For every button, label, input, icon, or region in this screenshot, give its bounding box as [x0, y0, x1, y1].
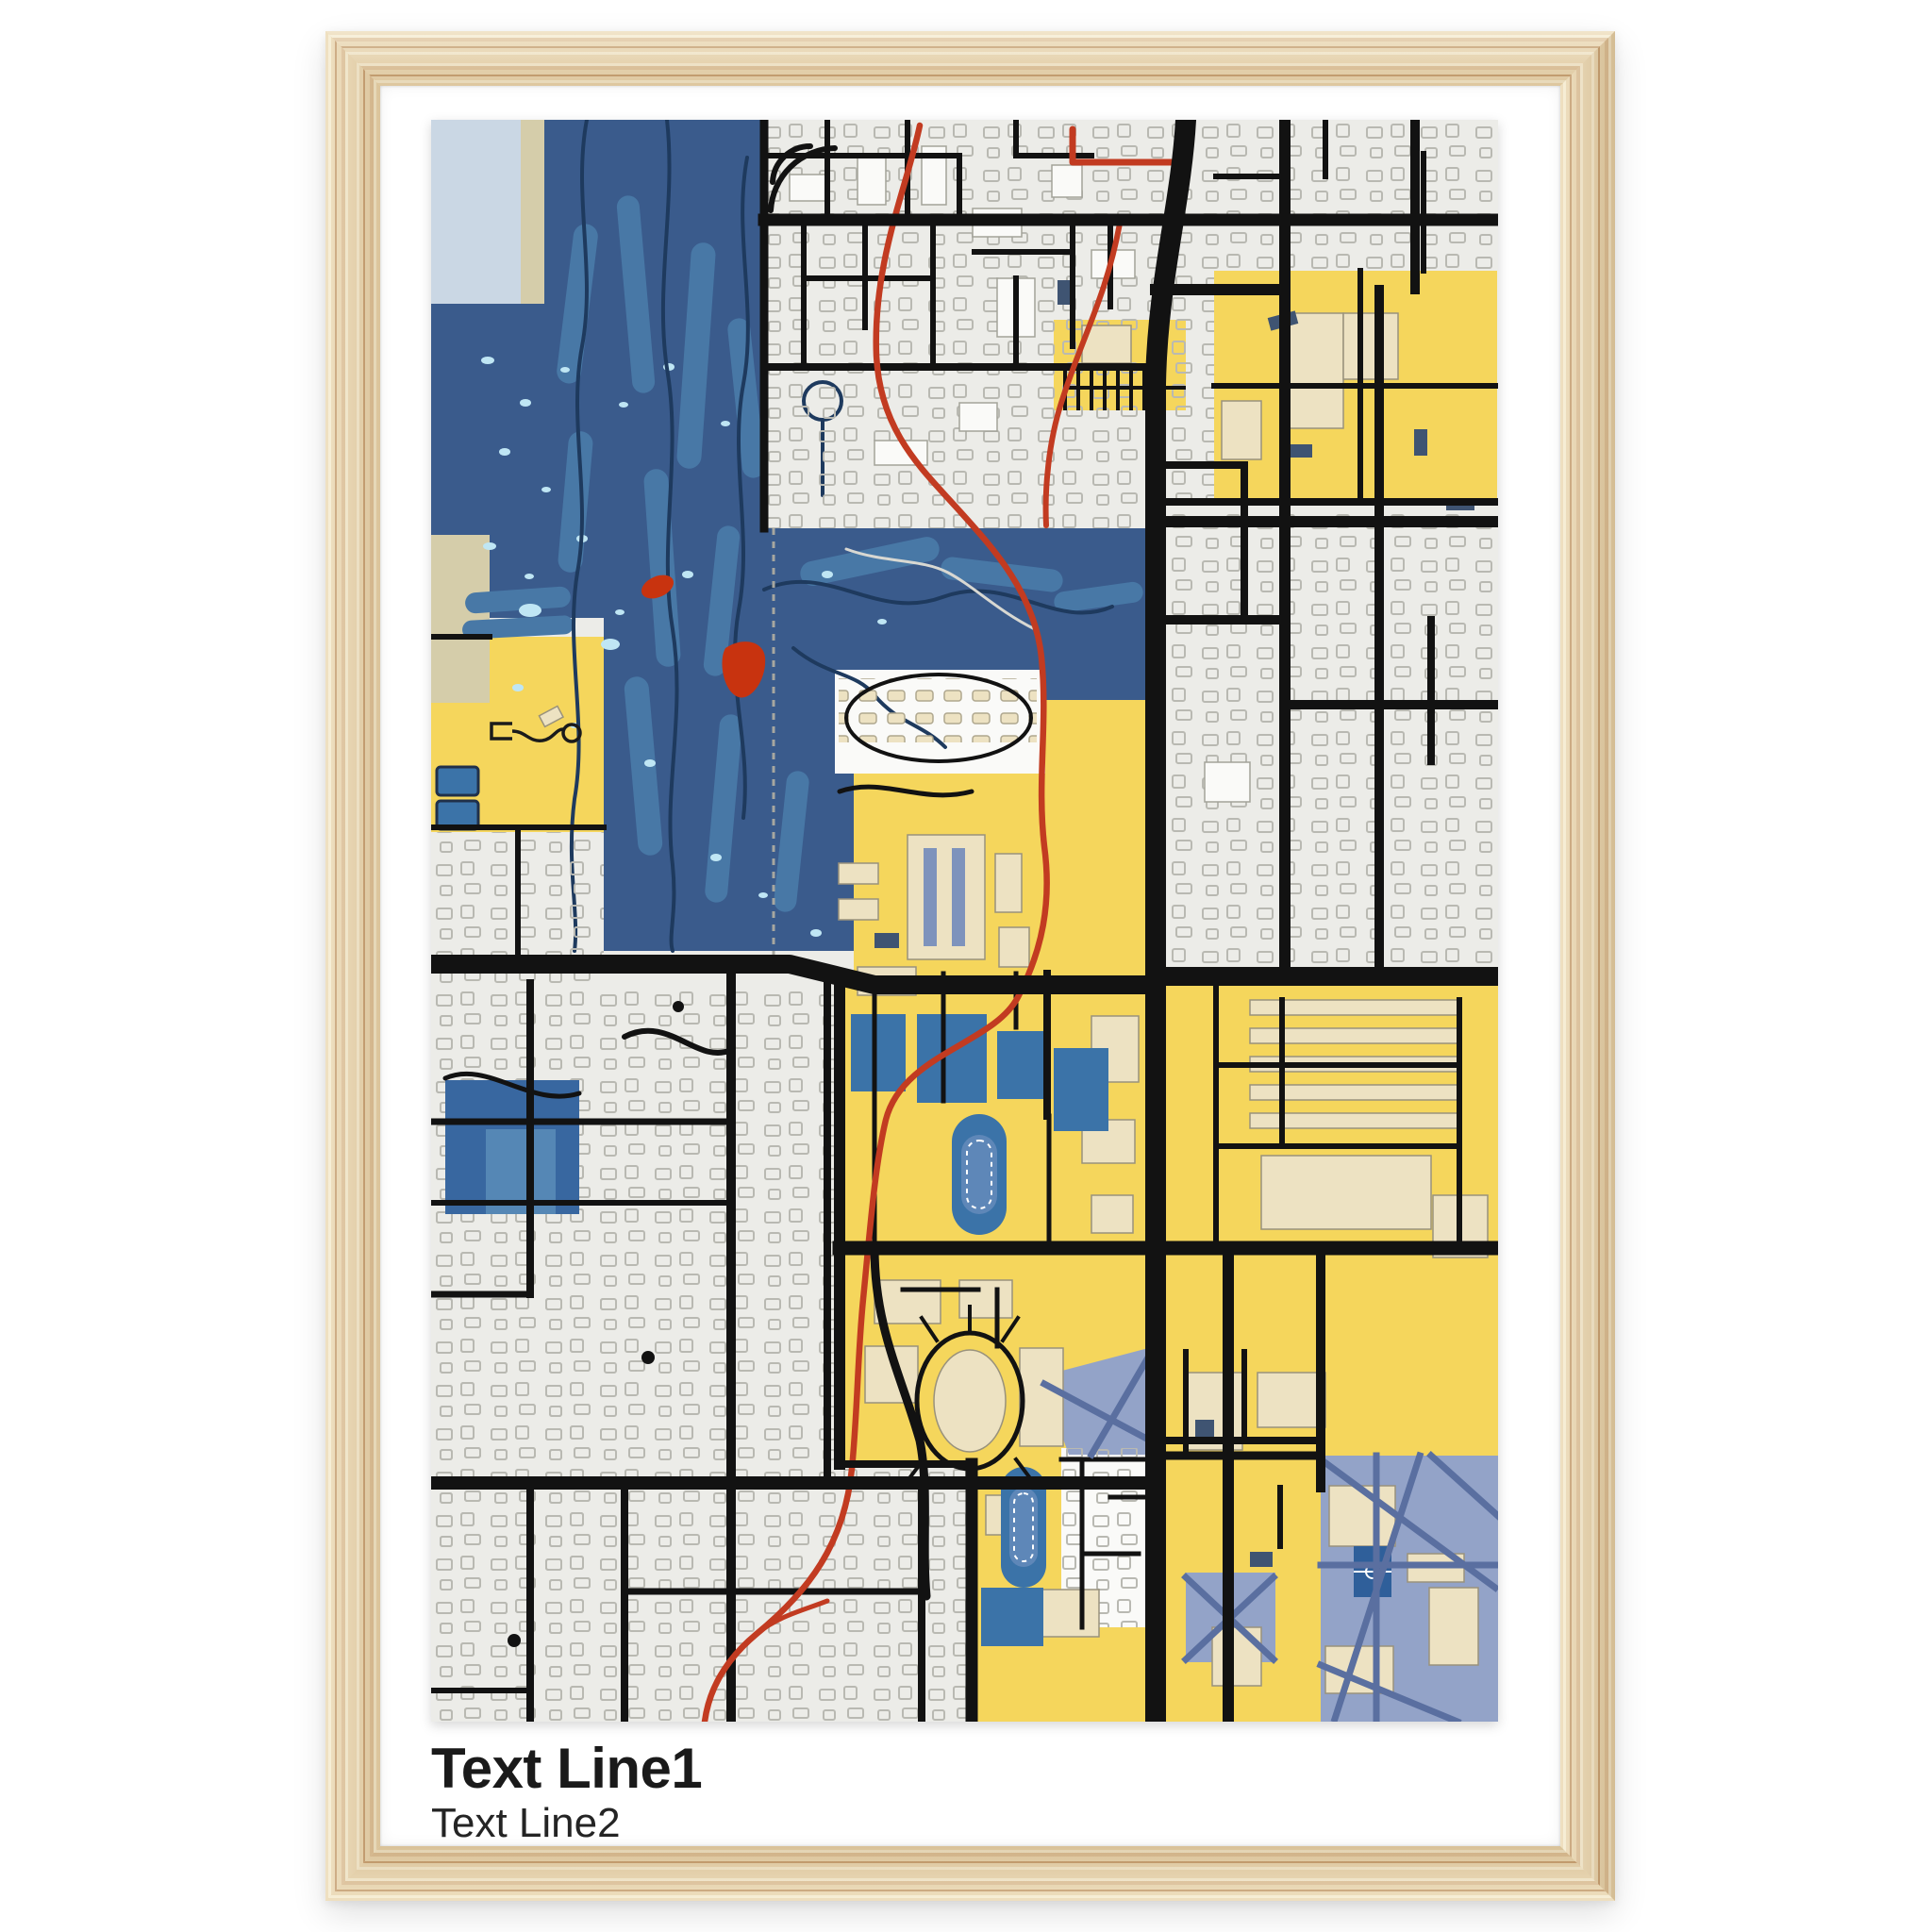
frame-left-rail	[325, 31, 380, 1901]
framed-map-poster-mockup: Text Line1 Text Line2	[0, 0, 1932, 1932]
athletic-fields-shape	[1054, 1048, 1108, 1131]
pond-specks-shape	[560, 367, 570, 373]
pond-specks-shape	[512, 684, 524, 691]
poster-subtitle: Text Line2	[431, 1801, 1498, 1846]
pond-specks-shape	[758, 892, 768, 898]
poster-print: Text Line1 Text Line2	[431, 120, 1498, 1846]
mat-board: Text Line1 Text Line2	[380, 86, 1560, 1846]
cream-buildings-shape	[1429, 1588, 1478, 1665]
athletic-fields-shape	[981, 1588, 1043, 1646]
poster-caption: Text Line1 Text Line2	[431, 1739, 1498, 1846]
pond-specks-shape	[721, 421, 730, 426]
base-regions-shape	[431, 120, 521, 304]
pond-specks-shape	[822, 571, 833, 578]
base-regions-shape	[490, 637, 604, 703]
minor-roads-shape	[508, 1634, 521, 1647]
pond-specks-shape	[810, 929, 822, 937]
athletic-fields-shape	[997, 1031, 1046, 1099]
slate-accents-shape	[874, 933, 899, 948]
base-regions-shape	[431, 535, 490, 703]
white-buildings-shape	[1052, 165, 1082, 197]
athletic-fields-shape	[917, 1014, 987, 1103]
athletic-fields-shape	[851, 1014, 906, 1091]
cream-buildings-shape	[952, 848, 965, 946]
pond-specks-shape	[541, 487, 551, 492]
cream-buildings-shape	[934, 1350, 1006, 1452]
cream-buildings-shape	[1212, 1627, 1261, 1686]
cream-buildings-shape	[1285, 313, 1343, 428]
slate-accents-shape	[1414, 429, 1427, 456]
cream-buildings-shape	[1343, 313, 1398, 379]
city-map-art	[431, 120, 1498, 1722]
cream-buildings-shape	[908, 835, 985, 959]
base-regions-shape	[521, 120, 544, 304]
pond-specks-shape	[483, 542, 496, 550]
pond-specks-shape	[619, 402, 628, 408]
pond-specks-shape	[519, 604, 541, 617]
pond-specks-shape	[644, 759, 656, 767]
minor-roads-shape	[641, 1351, 655, 1364]
white-buildings-shape	[959, 403, 997, 431]
white-buildings-shape	[858, 156, 886, 205]
residential-houses-shape	[1156, 502, 1498, 976]
pond-specks-shape	[499, 448, 510, 456]
pond-specks-shape	[520, 399, 531, 407]
cream-buildings-shape	[924, 848, 937, 946]
pond-specks-shape	[615, 609, 625, 615]
slate-accents-shape	[1250, 1552, 1273, 1567]
cream-buildings-shape	[839, 899, 878, 920]
frame-right-rail	[1560, 31, 1615, 1901]
pond-specks-shape	[710, 854, 722, 861]
pond-specks-shape	[601, 639, 620, 650]
pond-specks-shape	[877, 619, 887, 625]
cream-buildings-shape	[1261, 1156, 1431, 1229]
cream-buildings-shape	[839, 863, 878, 884]
cream-buildings-shape	[1091, 1195, 1133, 1233]
cream-buildings-shape	[1329, 1486, 1395, 1546]
frame-bottom-rail	[325, 1846, 1615, 1901]
pond-specks-shape	[481, 357, 494, 364]
frame-top-rail	[325, 31, 1615, 86]
yellow-block-fields-shape	[437, 767, 478, 795]
minor-roads-shape	[673, 1001, 684, 1012]
slate-accents-shape	[1058, 280, 1071, 305]
white-buildings-shape	[1205, 762, 1250, 802]
poster-title: Text Line1	[431, 1739, 1498, 1799]
pond-specks-shape	[682, 571, 693, 578]
pond-specks-shape	[525, 574, 534, 579]
cream-buildings-shape	[999, 927, 1029, 967]
cream-buildings-shape	[959, 1280, 1012, 1318]
cream-buildings-shape	[1020, 1348, 1063, 1446]
cream-buildings-shape	[1257, 1373, 1325, 1427]
picture-frame: Text Line1 Text Line2	[325, 31, 1615, 1901]
cream-buildings-shape	[995, 854, 1022, 912]
cream-buildings-shape	[1222, 401, 1261, 459]
white-buildings-shape	[790, 175, 829, 201]
